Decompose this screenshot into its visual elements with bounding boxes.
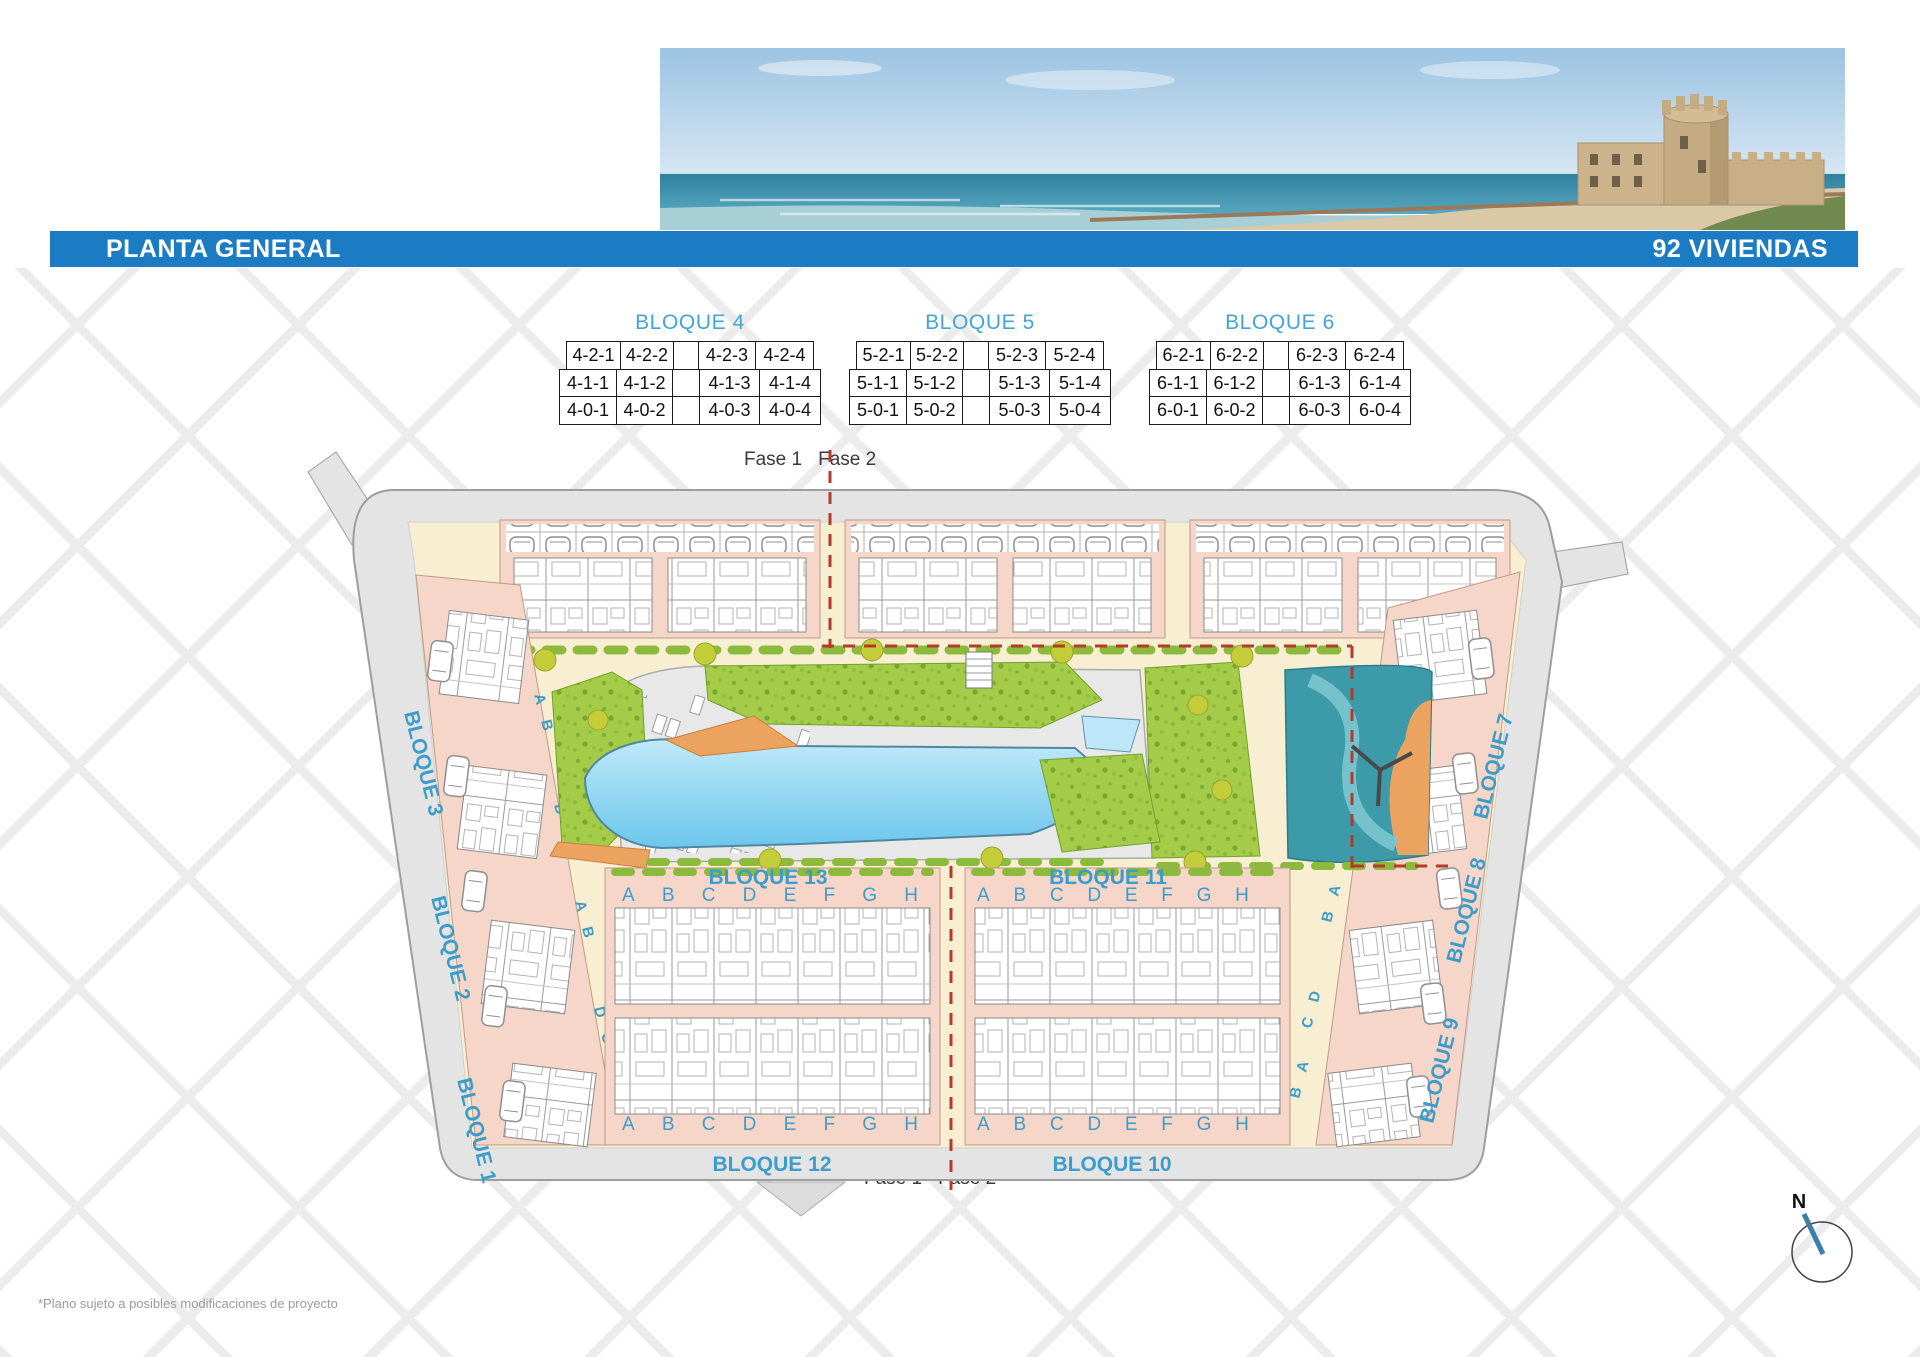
site-plan: ABDCABDCABABDCABDCAB: [0, 0, 1920, 1357]
unit-letter: E: [1125, 885, 1138, 907]
unit-letter-row: ABCDEFGH: [622, 885, 918, 907]
unit-letter: E: [784, 1114, 797, 1136]
stairs-icon: [966, 652, 992, 688]
unit-letter: G: [862, 1114, 877, 1136]
unit-letter: A: [622, 885, 635, 907]
unit-letter-row: ABCDEFGH: [977, 1114, 1249, 1136]
page: PLANTA GENERAL 92 VIVIENDAS BLOQUE 44-2-…: [0, 0, 1920, 1357]
unit-letter: B: [1013, 885, 1026, 907]
unit-letter: B: [1013, 1114, 1026, 1136]
unit-letter: C: [1050, 1114, 1064, 1136]
car-icon: [443, 755, 470, 797]
unit-letter-row: ABCDEFGH: [977, 885, 1249, 907]
entrance-marker: [757, 1182, 845, 1216]
unit-letter: H: [1235, 885, 1249, 907]
amenity-area: [534, 639, 1432, 873]
water-feature: [1285, 665, 1432, 862]
unit-letter: D: [1087, 885, 1101, 907]
unit-letter: G: [862, 885, 877, 907]
compass: N: [1792, 1191, 1852, 1282]
car-icon: [499, 1080, 526, 1122]
bloque-10-label: BLOQUE 10: [1052, 1153, 1171, 1176]
unit-letter: E: [1125, 1114, 1138, 1136]
car-icon: [481, 985, 508, 1027]
unit-letter: C: [1050, 885, 1064, 907]
garden-upper: [705, 662, 1102, 728]
unit-letter: F: [823, 1114, 835, 1136]
unit-letter: E: [784, 885, 797, 907]
unit-letter: A: [622, 1114, 635, 1136]
bloque-11-10-footprint: [965, 868, 1290, 1145]
unit-letter: B: [662, 1114, 675, 1136]
unit-letter: H: [904, 1114, 918, 1136]
unit-letter: C: [702, 885, 716, 907]
unit-letter: D: [743, 1114, 757, 1136]
car-icon: [1452, 752, 1479, 794]
unit-letter: H: [904, 885, 918, 907]
unit-letter: A: [977, 1114, 990, 1136]
car-icon: [1468, 637, 1495, 679]
disclaimer-footnote: *Plano sujeto a posibles modificaciones …: [38, 1296, 338, 1311]
unit-letter: F: [1161, 885, 1173, 907]
unit-letter: F: [823, 885, 835, 907]
unit-letter-row: ABCDEFGH: [622, 1114, 918, 1136]
unit-letter: C: [702, 1114, 716, 1136]
top-blocks: [500, 520, 1510, 650]
car-icon: [427, 640, 454, 682]
unit-letter: F: [1161, 1114, 1173, 1136]
unit-letter: H: [1235, 1114, 1249, 1136]
bloque-5-footprint: [845, 520, 1165, 638]
bloque-4-footprint: [500, 520, 820, 638]
unit-letter: A: [977, 885, 990, 907]
car-icon: [461, 870, 488, 912]
unit-letter: G: [1197, 885, 1212, 907]
small-pool: [1082, 716, 1140, 752]
unit-letter: D: [1087, 1114, 1101, 1136]
unit-letter: D: [743, 885, 757, 907]
bloque-13-12-footprint: [605, 868, 940, 1145]
garden-island: [1040, 754, 1160, 852]
north-label: N: [1792, 1191, 1806, 1213]
bloque-12-label: BLOQUE 12: [712, 1153, 831, 1176]
unit-letter: G: [1197, 1114, 1212, 1136]
unit-letter: B: [662, 885, 675, 907]
